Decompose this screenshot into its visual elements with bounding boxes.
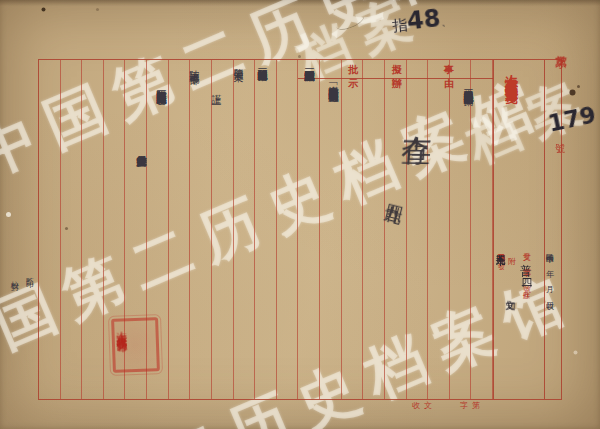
margin-label-proofread: 校對	[10, 274, 18, 278]
body-column-4-honorific: 鑒照備案	[233, 60, 243, 64]
seal-text: 上海市黨政接收委員會印	[114, 322, 127, 333]
received-date-blank: 中華民國 年 月 日收	[545, 248, 553, 296]
top-annotation-number: 48	[406, 4, 442, 35]
scan-edge-shadow	[0, 0, 600, 6]
section-divider	[493, 60, 494, 399]
body-column-5: 謹上	[211, 86, 221, 88]
outgoing-number-line: 發文 普 字第 二四 號 件狀	[520, 246, 532, 286]
letterhead: 上海市黨政接收委員會用箋	[505, 64, 518, 82]
header-proposed: 擬辦	[387, 63, 429, 91]
margin-label-seal-check: 監印	[25, 271, 33, 275]
body-column-7-attachments: 附陳上海市黨政接收委員會第一次會議紀錄暨組織規程各一份	[156, 82, 166, 87]
body-column-6-recipient: 陸軍總司令部	[189, 62, 199, 68]
bottom-registry-note: 收文 字第	[412, 400, 484, 411]
body-column-1: 謹查本市「黨政接收委員會」業經遵照頒發省市黨政接收委員會組織通	[328, 78, 338, 84]
ref-number-suffix: 號	[555, 142, 565, 156]
header-instructions: 批示	[343, 63, 385, 91]
header-subject: 事由	[429, 63, 491, 91]
top-annotation-tick: 、	[440, 15, 452, 29]
paper-stains	[0, 0, 1, 1]
sent-date-line: 中華民國三十四年九月十九日 發	[496, 248, 506, 256]
scanned-document: 中国第二历史档案馆 中国第二历史档案馆 中国第二历史档案馆 档案 档案 事由 擬…	[0, 0, 600, 429]
official-seal: 上海市黨政接收委員會印	[111, 317, 160, 373]
subject-column: 爲陳報本會組織成立并將第一次會議紀錄暨組織規程各一件隨函繕送案由	[464, 82, 474, 88]
column-rule-lines	[39, 60, 493, 399]
attachment-label: 附	[508, 256, 516, 267]
